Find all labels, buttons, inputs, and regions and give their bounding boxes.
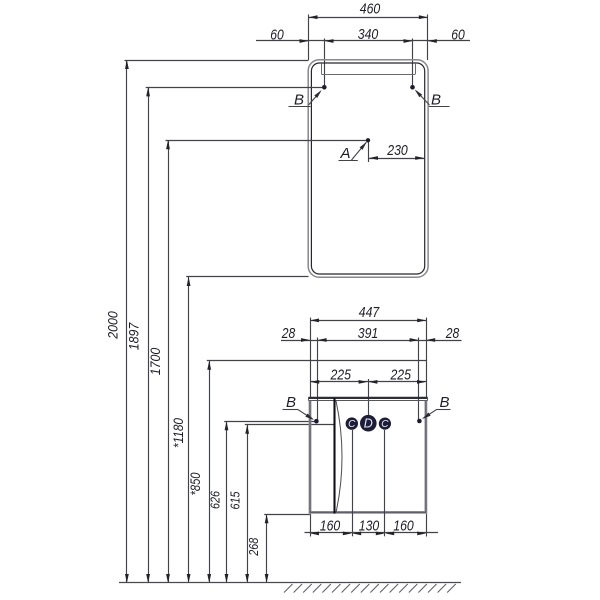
svg-text:28: 28 [445,325,460,342]
svg-text:1897: 1897 [127,322,142,350]
svg-text:B: B [439,394,449,411]
svg-text:230: 230 [386,142,408,159]
svg-text:28: 28 [281,325,296,342]
svg-text:615: 615 [228,491,243,510]
svg-text:2000: 2000 [105,311,120,340]
svg-text:1700: 1700 [148,347,163,375]
svg-text:60: 60 [451,27,465,44]
svg-text:626: 626 [208,490,223,509]
svg-text:340: 340 [358,26,379,43]
svg-text:460: 460 [360,1,381,18]
svg-text:*1180: *1180 [171,418,186,448]
svg-text:C: C [348,419,356,430]
svg-text:447: 447 [359,304,380,321]
svg-text:160: 160 [320,518,341,535]
svg-text:*850: *850 [188,472,203,495]
svg-text:130: 130 [359,518,380,535]
svg-text:391: 391 [358,325,379,342]
svg-text:225: 225 [390,367,412,384]
svg-text:268: 268 [246,537,261,556]
svg-text:A: A [339,145,350,162]
svg-text:60: 60 [270,27,284,44]
svg-text:225: 225 [330,367,352,384]
svg-text:D: D [364,417,373,431]
svg-text:B: B [286,394,296,411]
svg-text:C: C [381,419,389,430]
svg-text:160: 160 [393,518,414,535]
